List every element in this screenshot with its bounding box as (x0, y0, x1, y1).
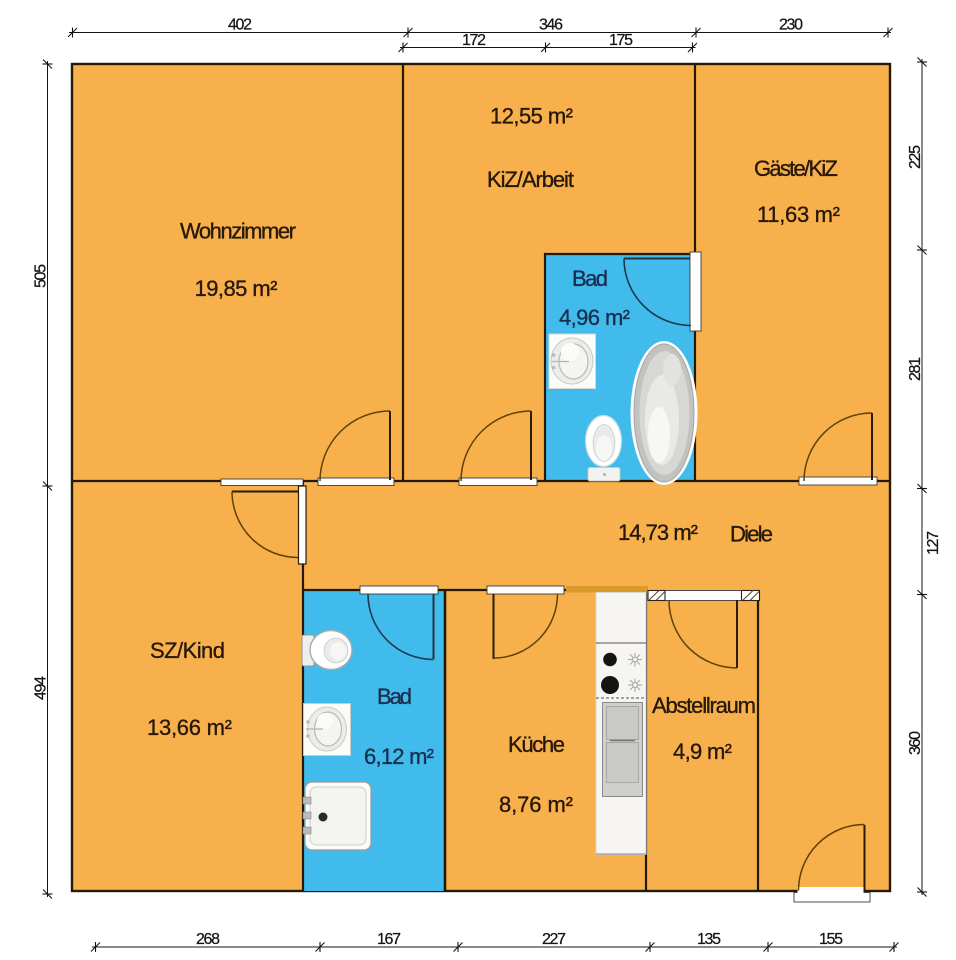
svg-text:175: 175 (609, 32, 633, 49)
svg-text:281: 281 (907, 357, 924, 381)
svg-text:14,73 m²: 14,73 m² (618, 520, 698, 545)
svg-text:494: 494 (33, 676, 50, 700)
svg-text:Gäste/KiZ: Gäste/KiZ (754, 156, 838, 181)
svg-text:346: 346 (539, 17, 563, 34)
svg-text:172: 172 (462, 32, 486, 49)
svg-text:4,9 m²: 4,9 m² (673, 739, 732, 764)
svg-text:230: 230 (779, 17, 803, 34)
svg-text:8,76 m²: 8,76 m² (499, 792, 573, 817)
svg-text:505: 505 (33, 264, 50, 288)
svg-text:227: 227 (542, 931, 566, 948)
svg-text:155: 155 (819, 931, 843, 948)
svg-text:Wohnzimmer: Wohnzimmer (180, 219, 296, 244)
svg-text:19,85 m²: 19,85 m² (195, 276, 278, 301)
svg-text:Abstellraum: Abstellraum (652, 693, 756, 718)
svg-text:13,66 m²: 13,66 m² (147, 715, 232, 740)
svg-text:SZ/Kind: SZ/Kind (150, 638, 225, 663)
svg-text:4,96 m²: 4,96 m² (559, 305, 630, 330)
svg-text:135: 135 (697, 931, 721, 948)
svg-text:12,55 m²: 12,55 m² (490, 104, 573, 129)
svg-text:Bad: Bad (572, 266, 608, 291)
svg-text:Bad: Bad (377, 684, 412, 709)
svg-text:268: 268 (196, 931, 220, 948)
svg-text:11,63 m²: 11,63 m² (757, 202, 840, 227)
svg-text:167: 167 (377, 931, 401, 948)
svg-text:KiZ/Arbeit: KiZ/Arbeit (487, 167, 574, 192)
svg-text:6,12 m²: 6,12 m² (364, 744, 434, 769)
svg-text:225: 225 (907, 145, 924, 169)
svg-text:127: 127 (925, 531, 942, 555)
svg-text:360: 360 (907, 731, 924, 755)
svg-text:402: 402 (228, 17, 252, 34)
svg-text:Küche: Küche (508, 732, 565, 757)
svg-text:Diele: Diele (730, 522, 773, 547)
